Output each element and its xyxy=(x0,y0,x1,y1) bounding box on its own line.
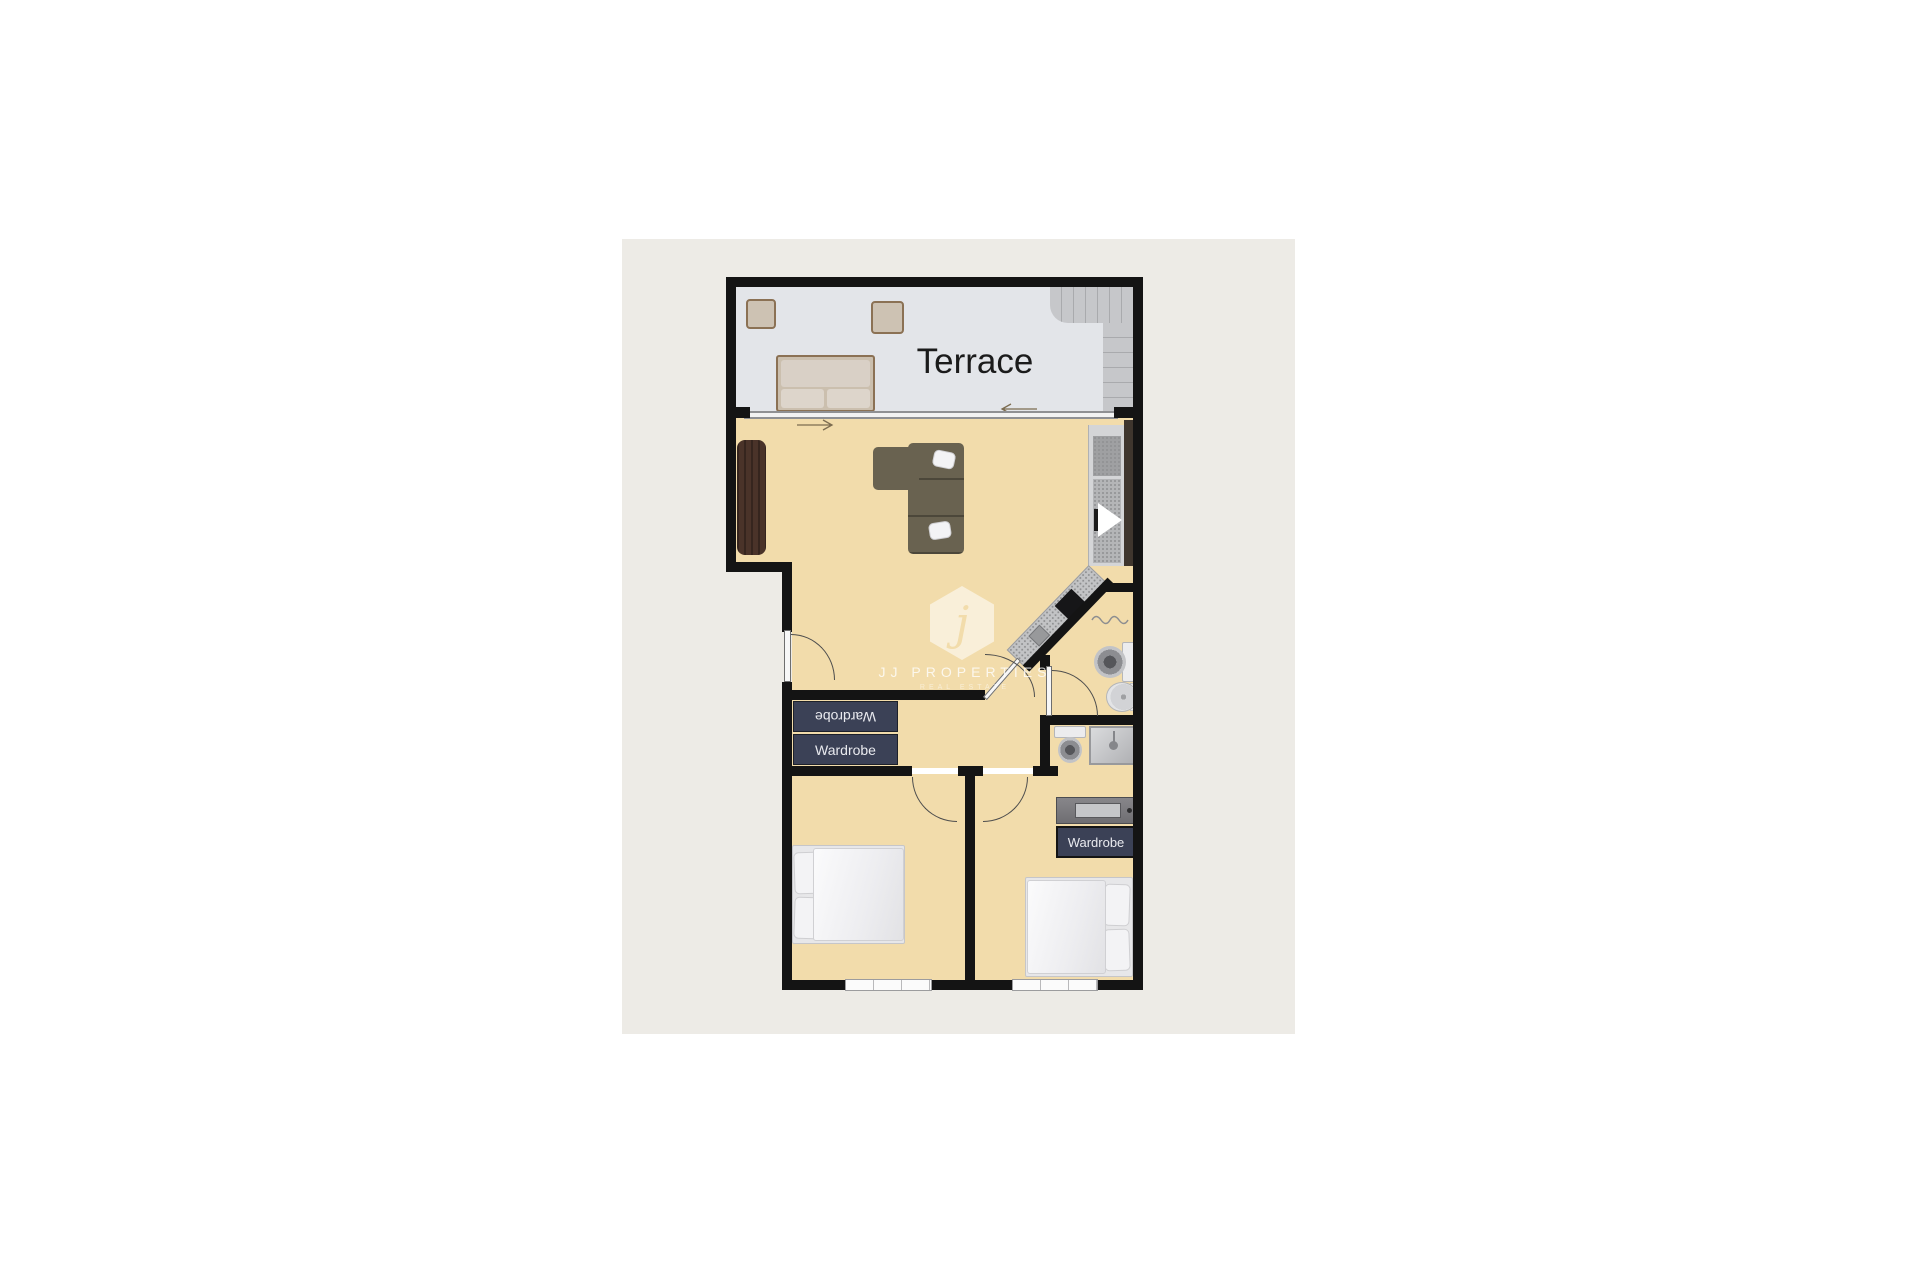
bed-pillow xyxy=(1103,884,1130,927)
outdoor-sofa-back xyxy=(781,360,870,387)
wardrobe-bedroom-right: Wardrobe xyxy=(1056,826,1136,858)
corner-sofa xyxy=(873,443,964,554)
kitchen-appliance xyxy=(1093,436,1121,476)
sofa-pillow xyxy=(928,520,952,540)
wall-bedroom-divider xyxy=(965,766,975,990)
towel-rail-icon xyxy=(1090,611,1134,625)
terrace-room-label: Terrace xyxy=(880,342,1070,382)
kitchen-tall-cabinets xyxy=(1124,420,1133,566)
appliance-handle xyxy=(1094,509,1098,531)
shower-hose xyxy=(1113,731,1115,742)
terrace-stool xyxy=(871,301,904,334)
door-threshold xyxy=(983,768,1033,774)
dresser xyxy=(1056,797,1136,824)
wall-divider-stub xyxy=(736,407,750,418)
toilet-bowl xyxy=(1058,737,1082,763)
brand-tagline: REAL ESTATE xyxy=(872,684,1058,691)
wardrobe-label: Wardrobe xyxy=(1068,835,1125,850)
wardrobe-label: Wardrobe xyxy=(815,742,876,758)
sideboard xyxy=(737,440,766,555)
bed-pillow xyxy=(1103,929,1130,972)
sliding-door xyxy=(744,411,1118,419)
wall-top xyxy=(726,277,1143,287)
shower-head-icon xyxy=(1109,741,1118,750)
wardrobe-label: Wardrobe xyxy=(815,709,876,725)
wardrobe-closet-bottom: Wardrobe xyxy=(793,734,898,765)
appliance-arrow-icon xyxy=(1098,503,1122,537)
dresser-drawer xyxy=(1075,803,1121,818)
wall-left-mid xyxy=(782,562,792,632)
wardrobe-closet-top: Wardrobe xyxy=(793,701,898,732)
outdoor-sofa-cushion xyxy=(781,389,824,408)
outdoor-sofa-cushion xyxy=(827,389,870,408)
wall-divider-stub xyxy=(1114,407,1143,418)
floor-plan-page: Terrace Wardrobe War xyxy=(0,0,1920,1280)
wall-hall-bottom xyxy=(782,766,912,776)
bed-duvet xyxy=(1027,880,1106,974)
window-bedroom-left xyxy=(845,979,932,991)
dresser-knob xyxy=(1127,808,1132,813)
wall-left-lower xyxy=(782,682,792,990)
kitchen-counter xyxy=(1088,425,1124,566)
wall-right xyxy=(1133,277,1143,990)
bed-left xyxy=(792,845,905,944)
shower-pan xyxy=(1089,726,1135,765)
brand-monogram: j xyxy=(955,596,969,650)
sofa-chaise-section xyxy=(873,447,919,490)
outdoor-sofa xyxy=(776,355,875,412)
door-threshold xyxy=(912,768,958,774)
terrace-stool xyxy=(746,299,776,329)
wall-left-upper xyxy=(726,277,736,572)
arrow-right-icon xyxy=(796,418,834,430)
staircase-lower-run xyxy=(1103,323,1133,411)
bed-right xyxy=(1025,877,1133,977)
wall-closet-top xyxy=(782,690,985,700)
staircase-upper-run xyxy=(1050,287,1133,323)
bed-duvet xyxy=(813,848,904,941)
toilet-bowl xyxy=(1094,646,1126,678)
entry-door-leaf xyxy=(784,630,791,682)
brand-name: JJ PROPERTIES xyxy=(872,664,1058,680)
wall-bath-divider xyxy=(1040,715,1143,725)
window-bedroom-right xyxy=(1012,979,1098,991)
